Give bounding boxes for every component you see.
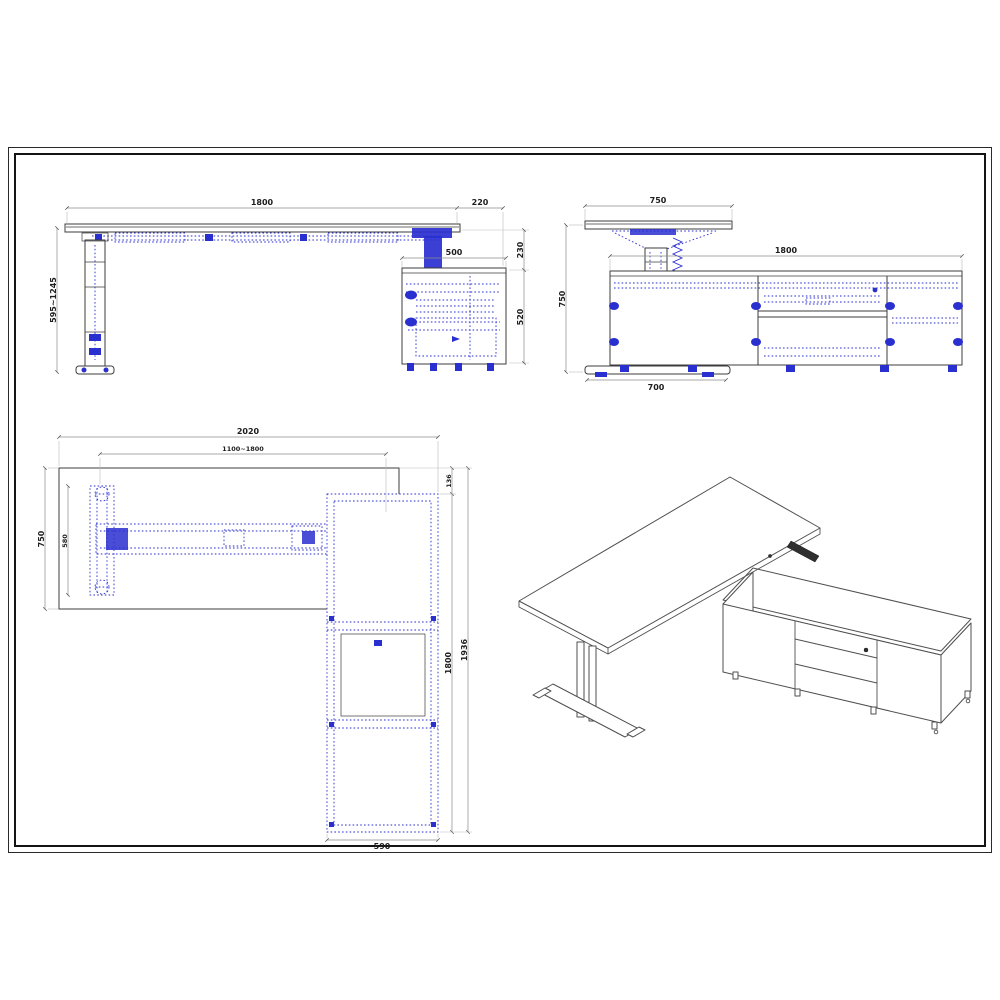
dim-cabinet-overhang: 220 <box>472 198 489 207</box>
iso-lock <box>864 648 868 652</box>
dim-cabinet-width: 500 <box>446 248 463 257</box>
dim-desk-width: 1800 <box>251 198 274 207</box>
dim-overall-return-length: 1936 <box>460 638 469 661</box>
dim-cabinet-length-side: 1800 <box>775 246 798 255</box>
dim-foot-length: 700 <box>648 383 665 392</box>
dim-cabinet-length-plan: 1800 <box>444 651 453 674</box>
front-elevation-view: 1800 220 595~1245 500 230 520 <box>49 198 529 374</box>
dim-overall-width: 2020 <box>237 427 260 436</box>
cabinet-side <box>609 271 963 372</box>
cabinet-front <box>402 268 506 371</box>
desk-top-side <box>585 221 732 229</box>
left-lifting-leg <box>76 233 114 374</box>
dim-overall-height: 750 <box>558 290 567 307</box>
drawing-sheet: 1800 220 595~1245 500 230 520 <box>0 0 1000 1000</box>
dim-desk-depth-plan: 750 <box>37 530 46 547</box>
dim-frame-adjust-range: 1100~1800 <box>222 445 264 453</box>
dim-desk-to-cabinet-gap: 230 <box>516 241 525 258</box>
dim-height-range: 595~1245 <box>49 277 58 323</box>
cabinet-plan <box>327 494 438 832</box>
dim-cabinet-depth: 590 <box>374 842 391 851</box>
dim-cabinet-height: 520 <box>516 308 525 325</box>
iso-t-leg <box>533 642 645 737</box>
plan-view: 2020 1100~1800 750 580 136 1800 1936 <box>37 427 472 851</box>
lock-side <box>873 288 878 293</box>
lock-plan <box>374 640 382 646</box>
dim-desk-depth: 750 <box>650 196 667 205</box>
technical-drawing-page: 1800 220 595~1245 500 230 520 <box>0 0 1000 1000</box>
desk-top-front <box>65 224 460 232</box>
side-elevation-view: 750 1800 750 700 <box>558 196 963 392</box>
iso-credenza <box>723 568 971 734</box>
dim-foot-span: 580 <box>61 534 69 548</box>
dim-return-gap: 136 <box>445 474 453 488</box>
isometric-view <box>519 477 971 737</box>
iso-keypad <box>787 541 819 562</box>
